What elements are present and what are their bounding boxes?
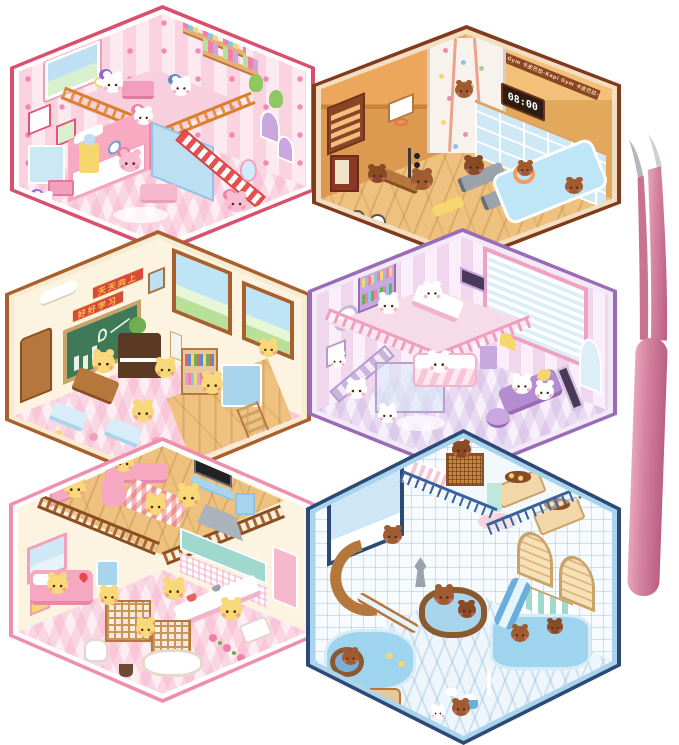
bear-teacher: [92, 352, 115, 373]
capybara-climbing: [455, 82, 473, 98]
capybara-in-pool: [547, 620, 563, 634]
chalk-line: [110, 318, 129, 333]
capybara-in-pool: [511, 626, 529, 642]
tweezers-handle: [627, 338, 668, 597]
bear-on-loft: [145, 496, 166, 515]
toilet: [84, 639, 107, 661]
puppy-sleeping: [428, 353, 450, 373]
vending-machine: [330, 155, 359, 192]
climbing-holds: [443, 48, 448, 53]
product-image: 卡皮巴拉-Kapi Gym 卡皮巴拉-Kapi Gym 卡皮巴拉-Kapi Gy…: [0, 0, 679, 745]
upright-piano: [118, 333, 161, 378]
bear-student: [132, 402, 154, 422]
scene-bear-home: [9, 437, 316, 703]
capybara: [464, 157, 484, 175]
dumbbell-plates: [414, 153, 420, 159]
heart-cushion: [78, 571, 90, 583]
wooden-bucket: [119, 664, 133, 677]
bear-bathing: [136, 620, 155, 637]
puppy: [378, 406, 397, 423]
tweezers-tip-right: [647, 135, 663, 169]
tweezers: [612, 131, 679, 601]
bear-student: [201, 374, 223, 394]
refrigerator: [272, 545, 298, 610]
capybara: [368, 166, 387, 183]
puppy-on-sofa: [535, 383, 554, 400]
potted-plant: [129, 317, 146, 334]
standing-mirror: [240, 159, 257, 182]
capybara-walking: [452, 700, 470, 716]
bear-on-bed: [47, 575, 68, 594]
shower-stand: [487, 670, 491, 696]
plush-toy: [249, 74, 263, 92]
pony: [134, 108, 153, 125]
pony: [226, 193, 247, 212]
bear-with-book: [177, 486, 200, 507]
water-cooler: [79, 143, 99, 173]
scene-capybara-bathhouse: [306, 429, 621, 745]
go-board-table: [446, 453, 485, 486]
piano-keys: [120, 358, 158, 362]
capybara-in-barrel: [342, 650, 359, 665]
bear-cooking: [163, 580, 185, 600]
puppy: [329, 353, 346, 368]
puppy-on-loft: [422, 283, 442, 301]
door: [20, 327, 52, 404]
capybara-in-ring: [517, 162, 533, 176]
loft-sofa-corner: [102, 478, 125, 505]
closet: [28, 145, 65, 184]
capybara-chef: [452, 441, 471, 458]
rubber-duck: [386, 653, 393, 659]
dresser: [96, 560, 119, 587]
spotted-capybara-lying: [505, 471, 531, 483]
chalk-doodle: [98, 327, 107, 343]
pink-table: [140, 184, 177, 202]
round-side-table: [486, 408, 510, 428]
capybara-in-hot-tub: [458, 602, 476, 618]
puppy-reading: [378, 295, 399, 314]
puppy-on-sofa: [512, 376, 532, 394]
nightstand: [480, 346, 497, 369]
scene-pony-bedroom: [10, 5, 315, 253]
tweezers-tip-left: [628, 140, 645, 180]
pony: [102, 74, 123, 93]
bear-in-kitchen: [220, 600, 242, 620]
goose: [431, 706, 445, 719]
washing-stool: [446, 688, 457, 696]
cabinet: [221, 364, 261, 406]
loft-vanity: [122, 81, 154, 99]
plush-toy: [269, 90, 283, 108]
gift-box: [235, 493, 255, 515]
bathtub: [142, 649, 203, 676]
water-bottle: [84, 134, 95, 146]
climbing-rope: [448, 38, 457, 152]
capybara-in-hot-tub: [434, 587, 454, 605]
vending-panel: [335, 160, 349, 183]
books-row: [185, 354, 214, 366]
